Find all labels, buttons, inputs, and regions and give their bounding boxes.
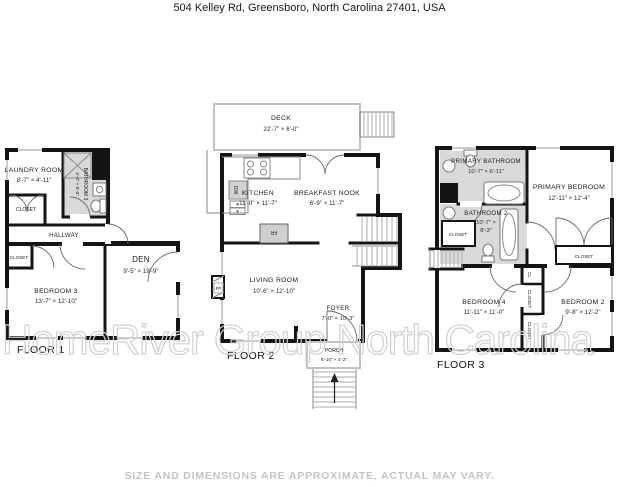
primary-bathroom-label: PRIMARY BATHROOM: [451, 158, 521, 165]
laundry-room-dims: 8'-7" × 4'-11": [17, 177, 52, 184]
porch-label: PORCH: [325, 348, 343, 354]
primary-bedroom-dims: 12'-11" × 12'-4": [548, 195, 590, 202]
fireplace-label: FP: [216, 286, 222, 291]
porch-dims: 6'-10" × 4'-2": [321, 357, 347, 362]
living-room-label: LIVING ROOM: [250, 277, 299, 284]
foyer-label: FOYER: [327, 305, 350, 312]
breakfast-nook-label: BREAKFAST NOOK: [294, 190, 360, 197]
bathroom3-dims: 4'-9" × 6'-3": [75, 172, 80, 196]
living-room-dims: 10'-6" × 12'-10": [253, 288, 295, 295]
closet-label: CLOSET: [575, 254, 594, 259]
bedroom4-label: BEDROOM 4: [462, 299, 506, 306]
hallway-label: HALLWAY: [49, 233, 79, 239]
floor2-doors: [306, 155, 357, 341]
closet-label: CLOSET: [449, 232, 468, 237]
deck-stairs: [360, 112, 394, 137]
bedroom3-dims: 13'-7" × 12'-10": [35, 298, 77, 305]
deck-label: DECK: [271, 115, 291, 122]
floor1-title: FLOOR 1: [17, 344, 65, 356]
toilet: [482, 256, 494, 262]
closet-label: CLOSET: [16, 207, 36, 213]
porch-outline: [307, 342, 360, 368]
floor2-walls: [222, 155, 400, 341]
bathroom2-dims2: 8'-3": [480, 228, 492, 234]
bedroom3-label: BEDROOM 3: [34, 288, 78, 295]
bathroom2-label: BATHROOM 2: [464, 210, 508, 217]
sink: [443, 207, 455, 219]
breakfast-nook-dims: 6'-9" × 11'-7": [310, 200, 345, 207]
closet-label: CLOSET: [10, 255, 29, 260]
laundry-room-label: LAUNDRY ROOM: [5, 167, 64, 174]
wall-block: [440, 183, 458, 203]
sink: [93, 183, 106, 196]
den-dims: 9'-5" × 19'-9": [123, 268, 158, 275]
bathroom3-label: BATHROOM 3: [82, 168, 88, 201]
disclaimer: SIZE AND DIMENSIONS ARE APPROXIMATE, ACT…: [0, 470, 619, 482]
closet-label: CLOSET: [527, 290, 532, 309]
floor3-title: FLOOR 3: [437, 359, 485, 371]
bathroom2-dims1: 10'-7" ×: [476, 220, 496, 226]
stove: [244, 158, 270, 178]
dishwasher-label: DW: [232, 186, 238, 195]
foyer-dims: 7'-0" × 10'-3": [322, 316, 355, 322]
bedroom2-label: BEDROOM 2: [561, 299, 605, 306]
floorplan-canvas: LAUNDRY ROOM 8'-7" × 4'-11" BATHROOM 3 4…: [0, 0, 619, 487]
bedroom4-dims: 11'-11" × 11'-0": [464, 309, 505, 316]
wall-block: [92, 152, 106, 180]
deck-dims: 22'-7" × 6'-0": [263, 126, 298, 133]
floor2-title: FLOOR 2: [227, 350, 275, 362]
kitchen-dims: 11'-0" × 11'-7": [239, 200, 277, 207]
bedroom2-dims: 9'-8" × 12'-2": [565, 309, 600, 316]
primary-bedroom-label: PRIMARY BEDROOM: [533, 184, 605, 191]
closet-label: CLOSET: [527, 322, 532, 341]
primary-bathroom-dims: 10'-7" × 6'-11": [468, 169, 504, 175]
floor2-door-openings: [306, 155, 358, 341]
floor2-plan: DECK 22'-7" × 6'-0" KITCHEN 11'-0" × 11'…: [207, 104, 400, 409]
floor1-plan: LAUNDRY ROOM 8'-7" × 4'-11" BATHROOM 3 4…: [5, 150, 178, 356]
floorplan-page: 504 Kelley Rd, Greensboro, North Carolin…: [0, 0, 619, 487]
den-label: DEN: [132, 255, 150, 264]
cl-label: CL: [527, 272, 532, 278]
kitchen-label: KITCHEN: [242, 190, 274, 197]
floor3-plan: PRIMARY BATHROOM 10'-7" × 6'-11" PRIMARY…: [430, 148, 612, 371]
fridge-label: FR: [270, 229, 277, 235]
